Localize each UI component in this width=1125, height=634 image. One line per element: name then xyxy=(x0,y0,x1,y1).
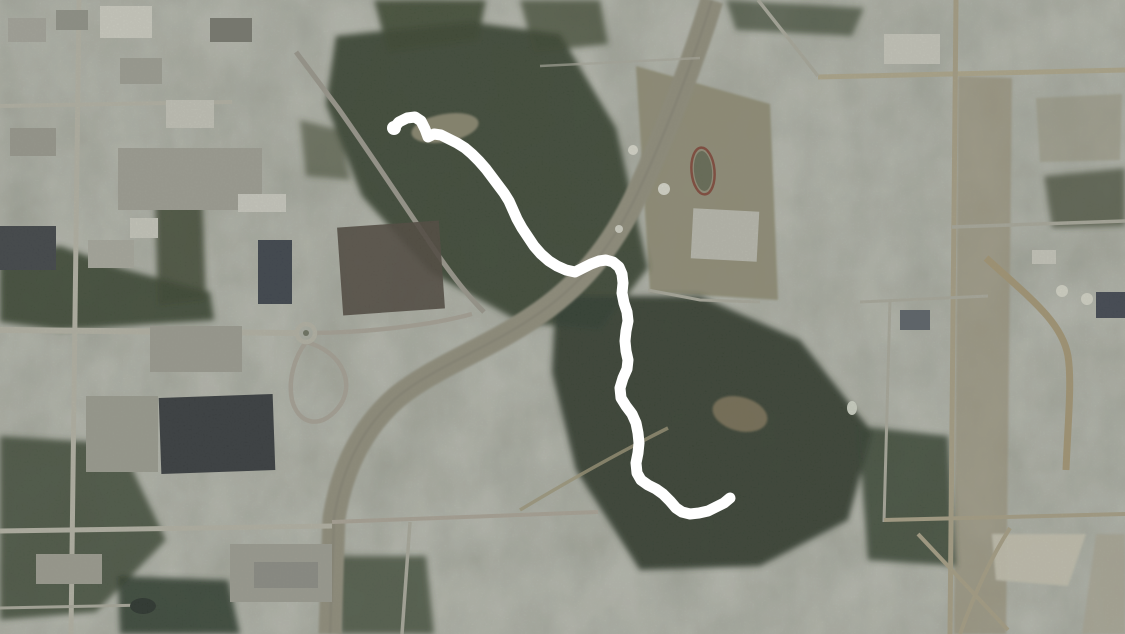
map-canvas xyxy=(0,0,1125,634)
map-layers xyxy=(0,0,1125,634)
fine-grain xyxy=(0,0,1125,634)
grain-layer xyxy=(0,0,1125,634)
satellite-map-view[interactable] xyxy=(0,0,1125,634)
